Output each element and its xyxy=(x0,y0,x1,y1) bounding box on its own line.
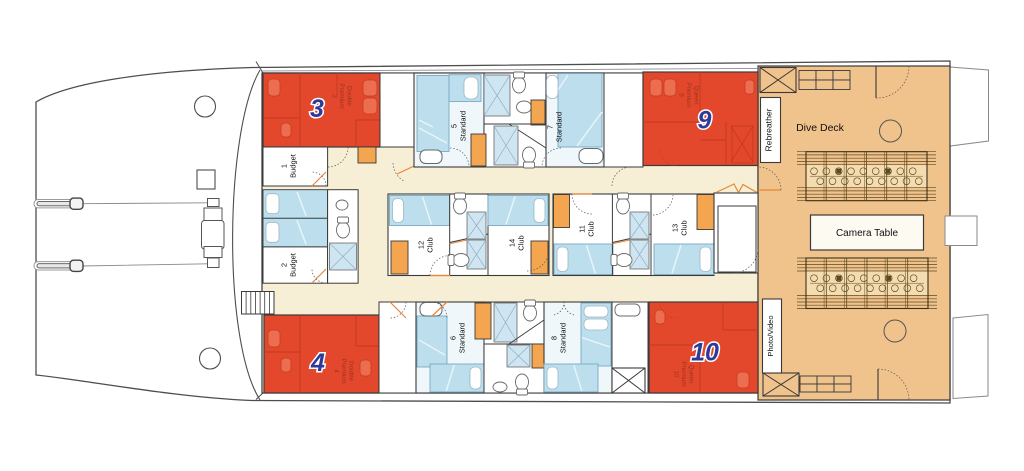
svg-text:Dive Deck: Dive Deck xyxy=(796,122,845,134)
svg-text:Club: Club xyxy=(426,237,435,252)
svg-text:7: 7 xyxy=(546,125,555,129)
svg-text:2: 2 xyxy=(280,263,289,267)
svg-text:Premium: Premium xyxy=(680,361,687,386)
svg-text:Queen: Queen xyxy=(693,86,700,105)
svg-text:Budget: Budget xyxy=(289,252,298,277)
svg-text:4: 4 xyxy=(310,349,325,377)
svg-text:9: 9 xyxy=(678,93,685,97)
svg-text:Double: Double xyxy=(346,86,353,106)
svg-text:9: 9 xyxy=(698,107,712,135)
svg-text:Premium: Premium xyxy=(340,358,347,383)
svg-text:Rebreather: Rebreather xyxy=(764,108,774,151)
svg-text:Budget: Budget xyxy=(289,153,298,178)
svg-text:Premium: Premium xyxy=(685,82,692,107)
svg-text:13: 13 xyxy=(671,224,680,232)
svg-text:Club: Club xyxy=(587,221,596,236)
svg-text:12: 12 xyxy=(417,241,426,249)
svg-text:Double: Double xyxy=(348,361,355,381)
svg-text:6: 6 xyxy=(449,336,458,340)
svg-text:11: 11 xyxy=(578,225,587,233)
svg-text:4: 4 xyxy=(333,369,340,373)
svg-text:Club: Club xyxy=(680,220,689,235)
svg-text:3: 3 xyxy=(331,94,338,98)
svg-text:Queen: Queen xyxy=(688,365,695,384)
svg-text:Standard: Standard xyxy=(459,111,468,141)
svg-text:Club: Club xyxy=(517,235,526,250)
svg-text:Premium: Premium xyxy=(338,83,345,108)
svg-text:10: 10 xyxy=(691,339,719,367)
svg-text:14: 14 xyxy=(508,239,517,247)
svg-text:1: 1 xyxy=(280,164,289,168)
svg-text:8: 8 xyxy=(550,336,559,340)
svg-text:5: 5 xyxy=(450,124,459,128)
svg-text:Standard: Standard xyxy=(458,323,467,353)
svg-text:Standard: Standard xyxy=(555,112,564,142)
svg-text:Photo/Video: Photo/Video xyxy=(766,315,775,356)
svg-text:Standard: Standard xyxy=(559,323,568,353)
svg-text:Camera Table: Camera Table xyxy=(836,228,899,239)
svg-text:10: 10 xyxy=(673,370,680,378)
svg-text:3: 3 xyxy=(310,95,324,123)
